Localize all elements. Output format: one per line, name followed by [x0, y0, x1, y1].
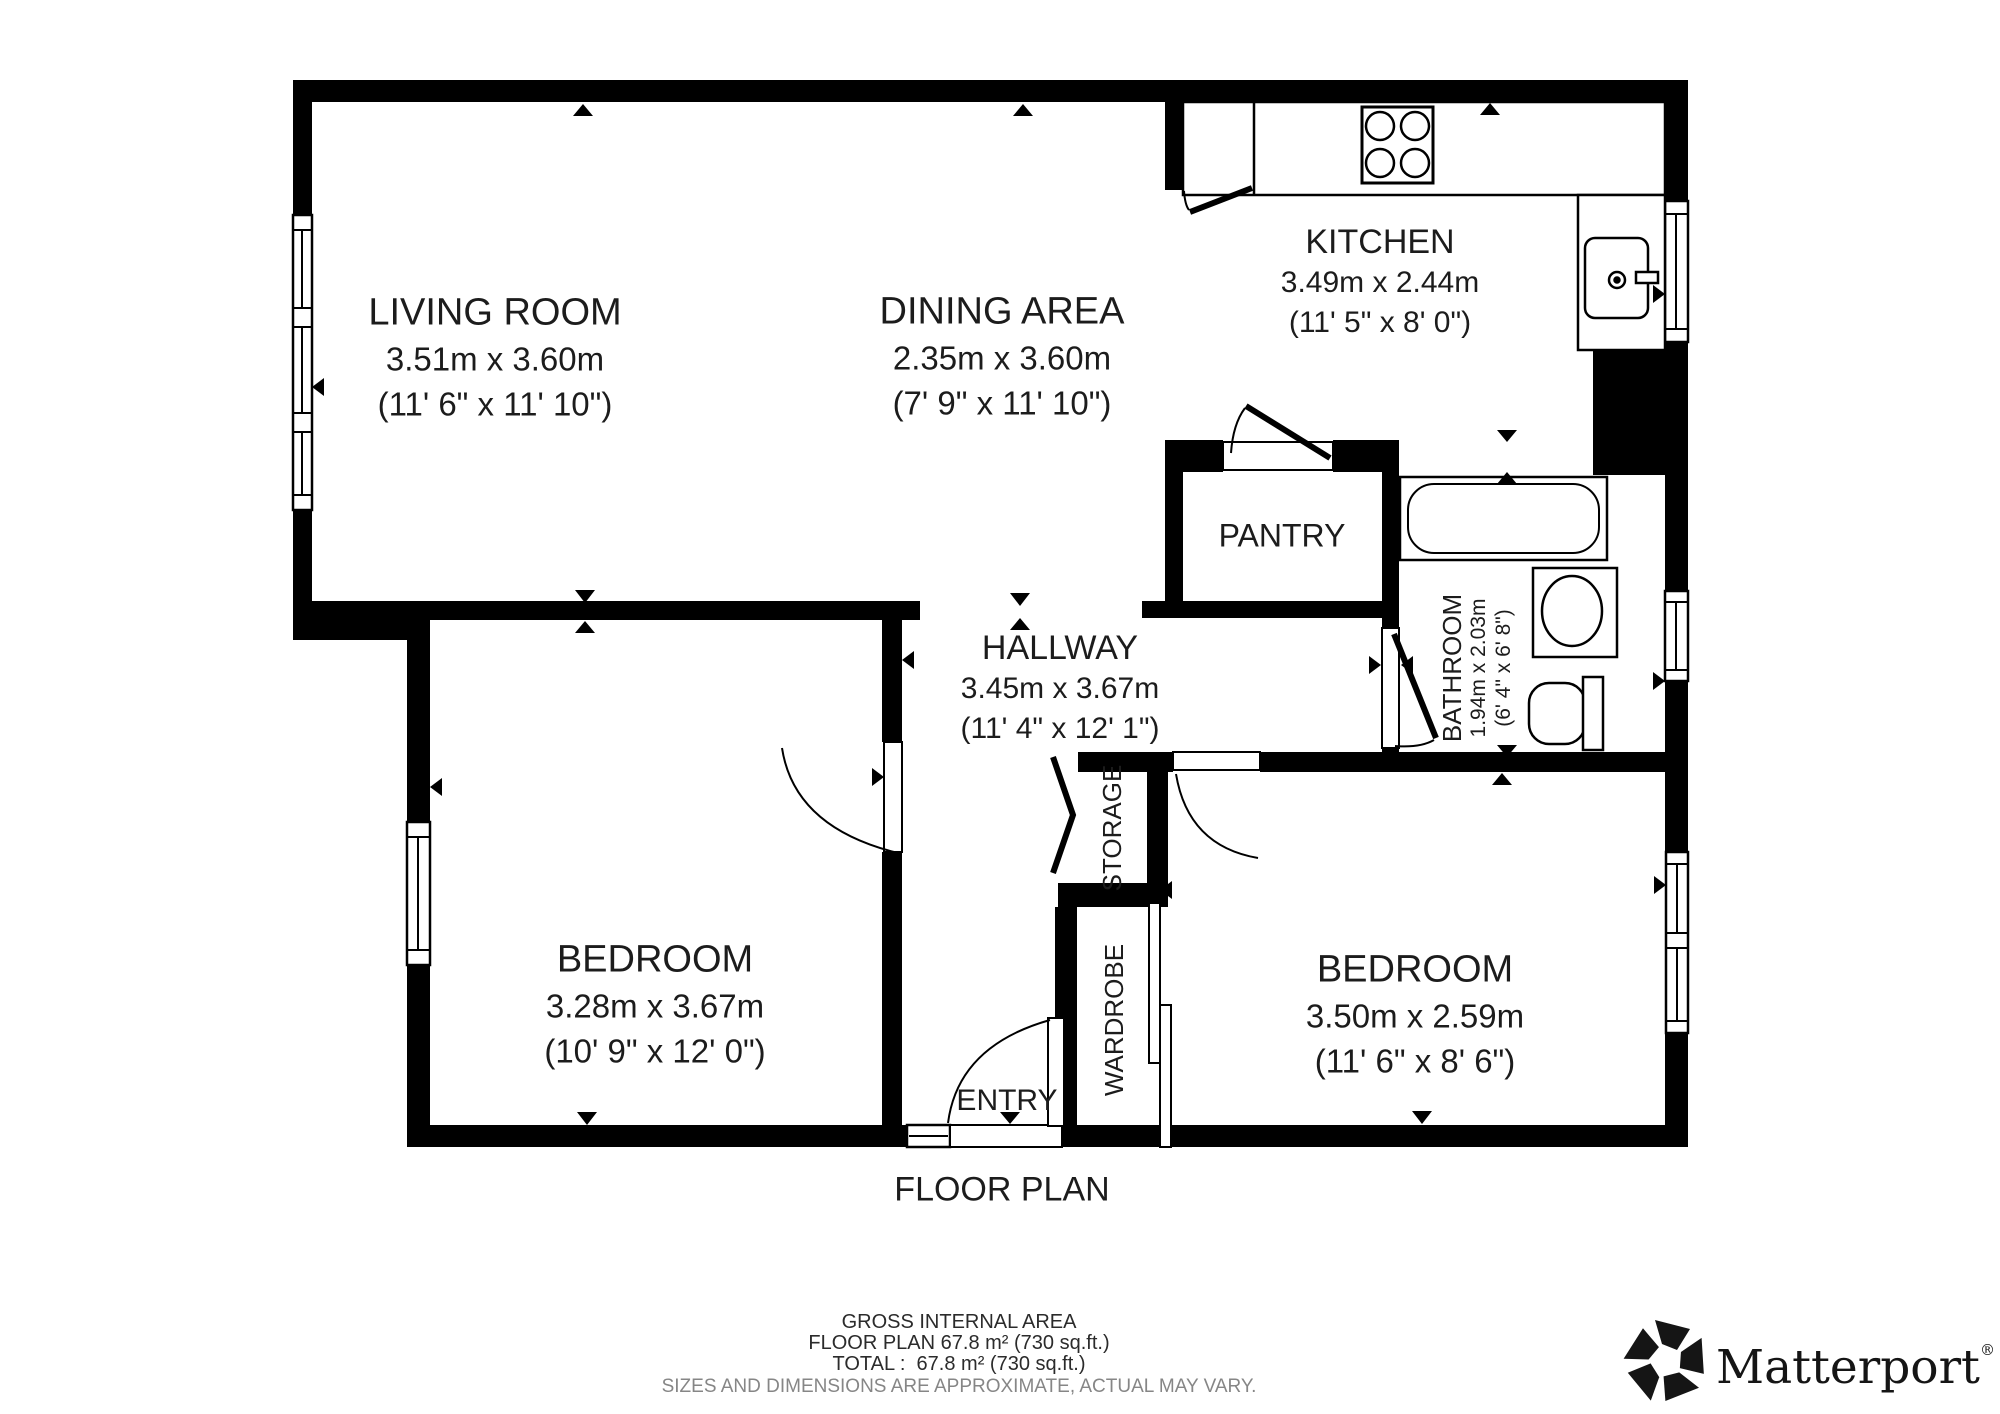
label-dining-area: DINING AREA 2.35m x 3.60m (7' 9" x 11' 1…	[880, 289, 1125, 426]
marker-arrow	[902, 651, 914, 669]
label-bathroom: BATHROOM 1.94m x 2.03m (6' 4" x 6' 8")	[1438, 594, 1516, 742]
room-name: ENTRY	[956, 1084, 1057, 1118]
bathtub-icon	[1400, 477, 1607, 560]
door-bedroom-right	[1173, 752, 1260, 858]
marker-arrow	[1492, 773, 1512, 785]
gross-internal-area-label: GROSS INTERNAL AREA	[662, 1312, 1257, 1333]
room-dims-metric: 2.35m x 3.60m	[880, 336, 1125, 381]
marker-arrow	[575, 621, 595, 633]
room-name: DINING AREA	[880, 289, 1125, 336]
room-dims-metric: 3.28m x 3.67m	[544, 984, 765, 1029]
room-name: LIVING ROOM	[368, 290, 621, 337]
door-storage-bifold	[1053, 757, 1073, 873]
room-dims-imperial: (10' 9" x 12' 0")	[544, 1029, 765, 1074]
marker-arrow	[577, 1112, 597, 1125]
label-bedroom-left: BEDROOM 3.28m x 3.67m (10' 9" x 12' 0")	[544, 937, 765, 1074]
matterport-wordmark: Matterport®	[1716, 1340, 1995, 1395]
area-summary: GROSS INTERNAL AREA FLOOR PLAN 67.8 m² (…	[662, 1312, 1257, 1397]
room-dims-metric: 1.94m x 2.03m	[1466, 594, 1491, 742]
label-storage: STORAGE	[1098, 765, 1126, 892]
room-name: BATHROOM	[1438, 594, 1466, 742]
marker-arrow	[1369, 656, 1381, 674]
room-dims-metric: 3.51m x 3.60m	[368, 337, 621, 382]
marker-arrow	[872, 768, 884, 786]
marker-arrow	[1010, 593, 1030, 606]
marker-arrow	[430, 778, 442, 796]
door-wardrobe-sliding	[1149, 903, 1171, 1147]
room-dims-metric: 3.45m x 3.67m	[961, 669, 1160, 709]
label-entry: ENTRY	[956, 1084, 1057, 1118]
room-dims-imperial: (6' 4" x 6' 8")	[1491, 594, 1516, 742]
room-name: KITCHEN	[1281, 221, 1479, 263]
door-bedroom-left	[782, 742, 902, 852]
room-name: BEDROOM	[1306, 947, 1524, 994]
floor-plan-area: FLOOR PLAN 67.8 m² (730 sq.ft.)	[662, 1333, 1257, 1354]
label-bedroom-right: BEDROOM 3.50m x 2.59m (11' 6" x 8' 6")	[1306, 947, 1524, 1084]
marker-arrow	[573, 104, 593, 116]
page-title: FLOOR PLAN	[894, 1171, 1109, 1210]
door-entry	[948, 1018, 1064, 1147]
room-name: BEDROOM	[544, 937, 765, 984]
label-wardrobe: WARDROBE	[1100, 944, 1128, 1096]
room-dims-imperial: (11' 5" x 8' 0")	[1281, 303, 1479, 343]
label-hallway: HALLWAY 3.45m x 3.67m (11' 4" x 12' 1")	[961, 627, 1160, 749]
room-dims-imperial: (11' 6" x 11' 10")	[368, 382, 621, 427]
marker-arrow	[1497, 430, 1517, 442]
room-dims-imperial: (11' 6" x 8' 6")	[1306, 1039, 1524, 1084]
marker-arrow	[1653, 672, 1665, 690]
label-kitchen: KITCHEN 3.49m x 2.44m (11' 5" x 8' 0")	[1281, 221, 1479, 343]
marker-arrow	[1412, 1111, 1432, 1124]
room-name: WARDROBE	[1100, 944, 1128, 1096]
matterport-pinwheel-icon	[1622, 1320, 1712, 1408]
room-dims-metric: 3.50m x 2.59m	[1306, 994, 1524, 1039]
room-dims-imperial: (7' 9" x 11' 10")	[880, 381, 1125, 426]
toilet-icon	[1529, 677, 1603, 750]
floor-plan-page: LIVING ROOM 3.51m x 3.60m (11' 6" x 11' …	[0, 0, 2000, 1414]
label-living-room: LIVING ROOM 3.51m x 3.60m (11' 6" x 11' …	[368, 290, 621, 427]
disclaimer: SIZES AND DIMENSIONS ARE APPROXIMATE, AC…	[662, 1376, 1257, 1397]
room-name: PANTRY	[1219, 518, 1346, 555]
marker-arrow	[1654, 876, 1666, 894]
bathroom-sink-icon	[1533, 568, 1617, 657]
stove-icon	[1362, 107, 1433, 183]
kitchen-sink-icon	[1585, 238, 1658, 318]
brand-name: Matterport	[1716, 1340, 1980, 1395]
room-name: STORAGE	[1098, 765, 1126, 892]
marker-arrow	[1013, 104, 1033, 116]
door-bathroom	[1382, 628, 1436, 748]
registered-mark: ®	[1980, 1341, 1995, 1359]
room-name: HALLWAY	[961, 627, 1160, 669]
room-dims-metric: 3.49m x 2.44m	[1281, 263, 1479, 303]
room-dims-imperial: (11' 4" x 12' 1")	[961, 709, 1160, 749]
total-area: TOTAL : 67.8 m² (730 sq.ft.)	[662, 1354, 1257, 1375]
door-pantry	[1223, 406, 1333, 470]
label-pantry: PANTRY	[1219, 518, 1346, 555]
marker-arrow	[312, 378, 324, 396]
